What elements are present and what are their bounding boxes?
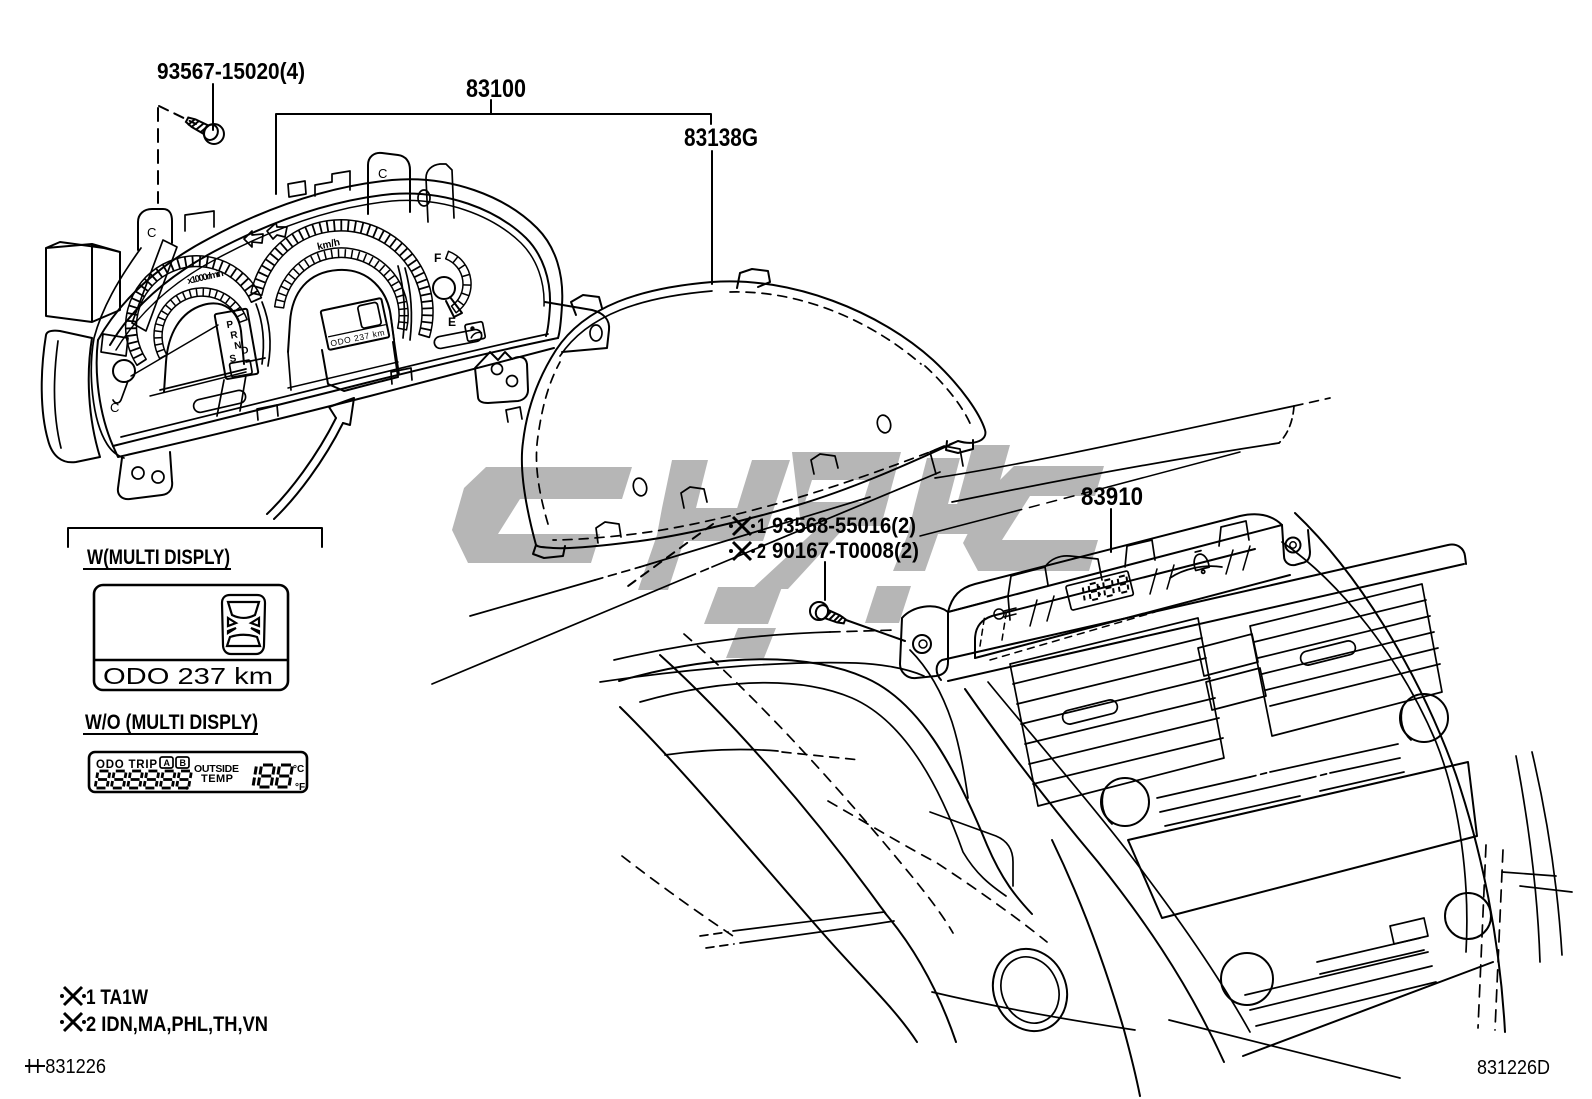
svg-text:1: 1 bbox=[757, 515, 766, 538]
svg-text:C: C bbox=[147, 225, 156, 240]
svg-text:B: B bbox=[180, 758, 187, 768]
svg-text:2 IDN,MA,PHL,TH,VN: 2 IDN,MA,PHL,TH,VN bbox=[86, 1013, 268, 1036]
svg-text:F: F bbox=[434, 251, 441, 265]
svg-text:90167-T0008(2): 90167-T0008(2) bbox=[772, 538, 919, 563]
svg-text:W/O (MULTI DISPLY): W/O (MULTI DISPLY) bbox=[85, 711, 258, 734]
svg-text:2: 2 bbox=[757, 540, 766, 563]
svg-text:93568-55016(2): 93568-55016(2) bbox=[772, 513, 916, 538]
svg-text:1 TA1W: 1 TA1W bbox=[86, 986, 148, 1009]
svg-text:TEMP: TEMP bbox=[201, 773, 233, 785]
svg-text:93567-15020(4): 93567-15020(4) bbox=[157, 58, 305, 84]
svg-text:831226D: 831226D bbox=[1477, 1057, 1550, 1079]
svg-text:83138G: 83138G bbox=[684, 124, 758, 152]
svg-text:C: C bbox=[110, 400, 119, 415]
svg-text:A: A bbox=[164, 758, 171, 768]
svg-text:°C: °C bbox=[293, 764, 304, 775]
svg-text:C: C bbox=[378, 166, 387, 181]
svg-text:ODO TRIP: ODO TRIP bbox=[96, 759, 157, 771]
svg-text:x1000r/min: x1000r/min bbox=[186, 268, 225, 287]
svg-text:W(MULTI DISPLY): W(MULTI DISPLY) bbox=[87, 546, 230, 569]
svg-text:D: D bbox=[240, 345, 249, 357]
svg-text:83100: 83100 bbox=[466, 75, 526, 103]
svg-text:°F: °F bbox=[295, 782, 305, 793]
svg-text:ODO 237 km: ODO 237 km bbox=[103, 663, 273, 689]
svg-text:km/h: km/h bbox=[316, 237, 341, 253]
svg-text:83910: 83910 bbox=[1081, 483, 1143, 511]
